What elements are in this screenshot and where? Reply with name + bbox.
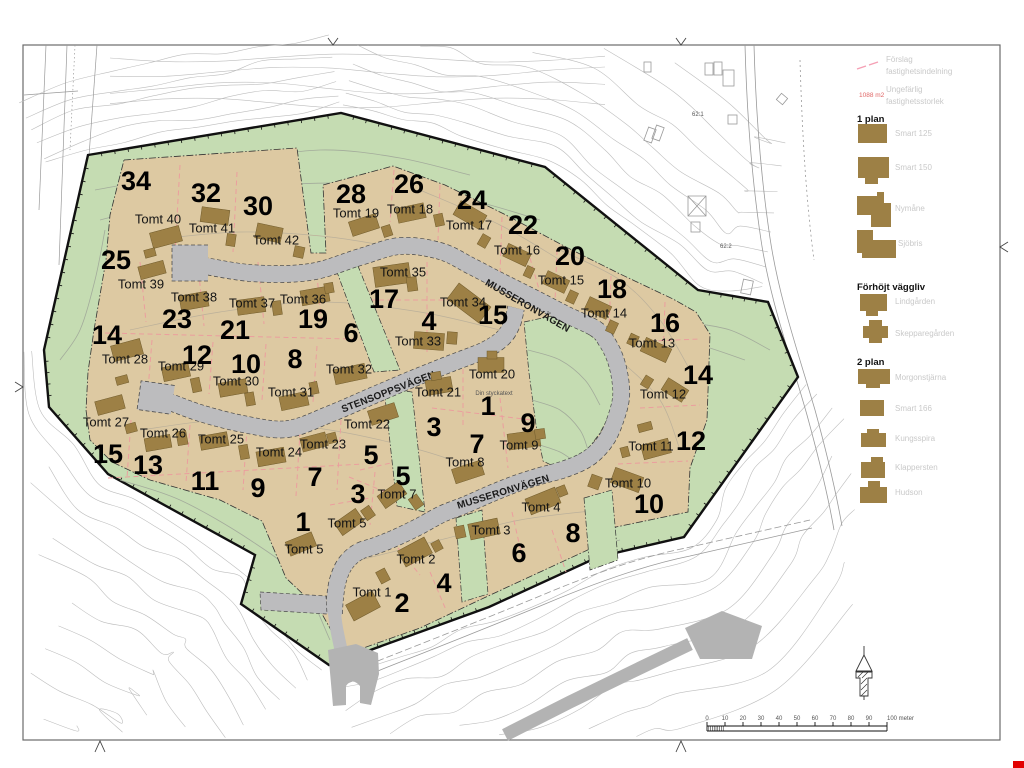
svg-text:15: 15: [478, 300, 508, 330]
svg-text:100 meter: 100 meter: [887, 716, 914, 722]
svg-text:30: 30: [758, 716, 765, 722]
svg-text:3: 3: [350, 479, 365, 509]
svg-text:Ungefärlig: Ungefärlig: [886, 85, 922, 94]
svg-text:Tomt 27: Tomt 27: [83, 415, 129, 430]
svg-text:Smart 150: Smart 150: [895, 163, 932, 172]
svg-text:Tomt 26: Tomt 26: [140, 426, 186, 441]
svg-text:90: 90: [866, 716, 873, 722]
svg-text:40: 40: [776, 716, 783, 722]
svg-text:Tomt 38: Tomt 38: [171, 290, 217, 305]
svg-text:10: 10: [634, 489, 664, 519]
svg-text:Kungsspira: Kungsspira: [895, 434, 936, 443]
svg-text:Tomt 17: Tomt 17: [446, 218, 492, 233]
svg-text:Tomt 24: Tomt 24: [256, 445, 302, 460]
svg-text:Tomt 22: Tomt 22: [344, 417, 390, 432]
svg-text:18: 18: [597, 274, 627, 304]
svg-text:24: 24: [457, 185, 487, 215]
svg-text:Tomt 23: Tomt 23: [300, 437, 346, 452]
svg-text:2 plan: 2 plan: [857, 357, 885, 368]
svg-text:Morgonstjärna: Morgonstjärna: [895, 373, 947, 382]
svg-text:1 plan: 1 plan: [857, 114, 885, 125]
svg-text:Tomt 37: Tomt 37: [229, 296, 275, 311]
svg-text:10: 10: [722, 716, 729, 722]
svg-text:23: 23: [162, 304, 192, 334]
svg-text:21: 21: [220, 315, 250, 345]
svg-text:Tomt 18: Tomt 18: [387, 202, 433, 217]
svg-text:13: 13: [133, 450, 163, 480]
svg-text:32: 32: [191, 178, 221, 208]
svg-text:Tomt 20: Tomt 20: [469, 367, 515, 382]
svg-text:fastighetsindelning: fastighetsindelning: [886, 67, 952, 76]
svg-text:Tomt 35: Tomt 35: [380, 265, 426, 280]
svg-text:Tomt 14: Tomt 14: [581, 306, 627, 321]
svg-text:4: 4: [436, 568, 451, 598]
svg-text:80: 80: [848, 716, 855, 722]
svg-text:20: 20: [555, 241, 585, 271]
svg-text:9: 9: [250, 473, 265, 503]
svg-text:Tomt 41: Tomt 41: [189, 221, 235, 236]
svg-text:Sjöbris: Sjöbris: [898, 239, 922, 248]
svg-text:11: 11: [191, 466, 220, 496]
svg-text:4: 4: [421, 306, 436, 336]
svg-text:16: 16: [650, 308, 680, 338]
svg-text:Tomt 21: Tomt 21: [415, 385, 461, 400]
svg-text:Hudson: Hudson: [895, 488, 923, 497]
svg-text:Nymåne: Nymåne: [895, 204, 925, 213]
svg-text:26: 26: [394, 169, 424, 199]
svg-text:Tomt 16: Tomt 16: [494, 243, 540, 258]
svg-text:6: 6: [511, 538, 526, 568]
svg-text:1088 m2: 1088 m2: [859, 92, 885, 99]
svg-text:Tomt 12: Tomt 12: [640, 387, 686, 402]
svg-text:8: 8: [565, 518, 580, 548]
svg-text:Förslag: Förslag: [886, 55, 913, 64]
svg-text:15: 15: [93, 439, 123, 469]
svg-text:6: 6: [343, 318, 358, 348]
svg-text:8: 8: [287, 344, 302, 374]
svg-text:22: 22: [508, 210, 538, 240]
svg-text:Förhöjt väggliv: Förhöjt väggliv: [857, 282, 926, 293]
svg-text:2: 2: [394, 588, 409, 618]
svg-text:Tomt 32: Tomt 32: [326, 362, 372, 377]
svg-text:Klappersten: Klappersten: [895, 463, 938, 472]
svg-text:62:2: 62:2: [720, 244, 732, 250]
svg-text:Tomt 2: Tomt 2: [396, 552, 435, 567]
svg-text:Tomt 1: Tomt 1: [352, 585, 391, 600]
svg-text:Din styckatext: Din styckatext: [475, 391, 513, 397]
svg-text:20: 20: [740, 716, 747, 722]
svg-text:12: 12: [182, 340, 212, 370]
svg-text:62:1: 62:1: [692, 112, 704, 118]
svg-text:17: 17: [369, 284, 399, 314]
svg-text:Tomt 4: Tomt 4: [521, 500, 560, 515]
svg-text:28: 28: [336, 179, 366, 209]
svg-text:Tomt 31: Tomt 31: [268, 385, 314, 400]
svg-text:Tomt 28: Tomt 28: [102, 352, 148, 367]
svg-text:7: 7: [469, 429, 484, 459]
svg-text:Tomt 3: Tomt 3: [471, 523, 510, 538]
svg-text:Tomt 9: Tomt 9: [499, 438, 538, 453]
svg-text:7: 7: [307, 462, 322, 492]
svg-text:70: 70: [830, 716, 837, 722]
svg-text:Skepparegården: Skepparegården: [895, 329, 954, 338]
svg-text:3: 3: [426, 412, 441, 442]
svg-text:Tomt 40: Tomt 40: [135, 212, 181, 227]
svg-text:12: 12: [676, 426, 706, 456]
svg-text:Tomt 25: Tomt 25: [198, 432, 244, 447]
svg-text:10: 10: [231, 349, 261, 379]
svg-text:Smart 166: Smart 166: [895, 404, 932, 413]
svg-text:9: 9: [520, 408, 535, 438]
svg-text:Tomt 15: Tomt 15: [538, 273, 584, 288]
svg-text:19: 19: [298, 304, 328, 334]
svg-text:Tomt 5: Tomt 5: [327, 516, 366, 531]
svg-text:14: 14: [92, 320, 122, 350]
svg-text:Tomt 39: Tomt 39: [118, 277, 164, 292]
svg-text:Tomt 42: Tomt 42: [253, 233, 299, 248]
svg-text:30: 30: [243, 191, 273, 221]
svg-text:50: 50: [794, 716, 801, 722]
svg-text:Lindgården: Lindgården: [895, 297, 935, 306]
svg-text:Tomt 5: Tomt 5: [284, 542, 323, 557]
svg-text:25: 25: [101, 245, 131, 275]
svg-text:34: 34: [121, 166, 151, 196]
svg-text:Smart 125: Smart 125: [895, 129, 932, 138]
svg-text:Tomt 11: Tomt 11: [628, 439, 673, 454]
svg-text:fastighetsstorlek: fastighetsstorlek: [886, 97, 945, 106]
svg-text:5: 5: [363, 440, 378, 470]
svg-text:5: 5: [395, 461, 410, 491]
svg-text:1: 1: [295, 507, 310, 537]
svg-text:14: 14: [683, 360, 713, 390]
svg-text:60: 60: [812, 716, 819, 722]
